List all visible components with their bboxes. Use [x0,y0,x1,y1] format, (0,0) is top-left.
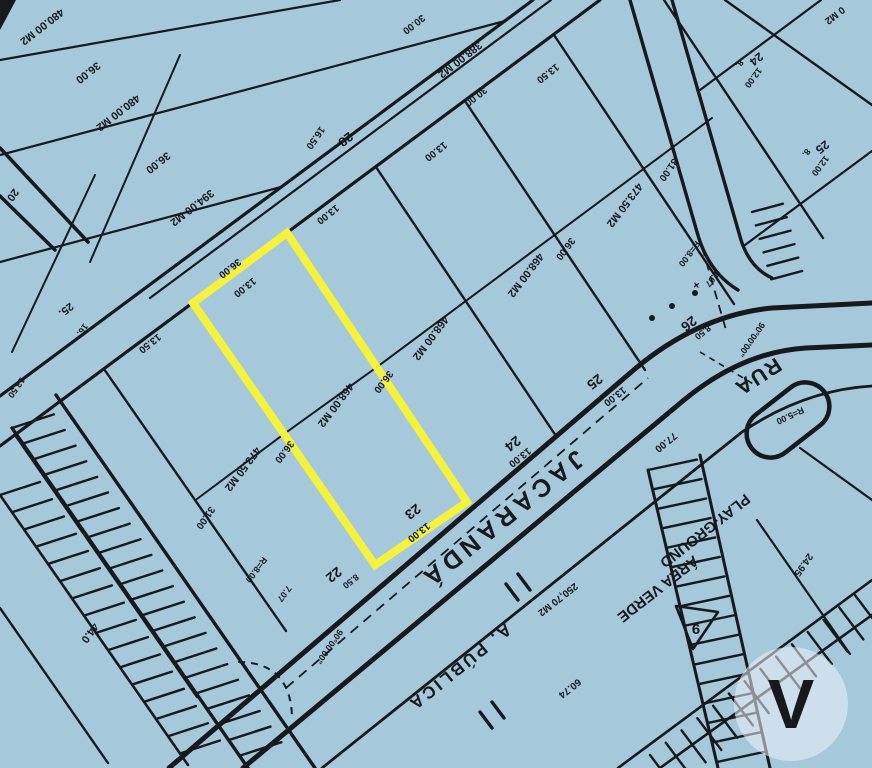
survey-plat-map: 480.00 M236.00480.00 M236.00394.00 M2202… [0,0,872,768]
watermark-logo: V [768,665,815,743]
survey-dot [649,315,655,321]
survey-dot [669,303,675,309]
plat-map-page: 480.00 M236.00480.00 M236.00394.00 M2202… [0,0,872,768]
marker-number: 9 [692,620,700,637]
